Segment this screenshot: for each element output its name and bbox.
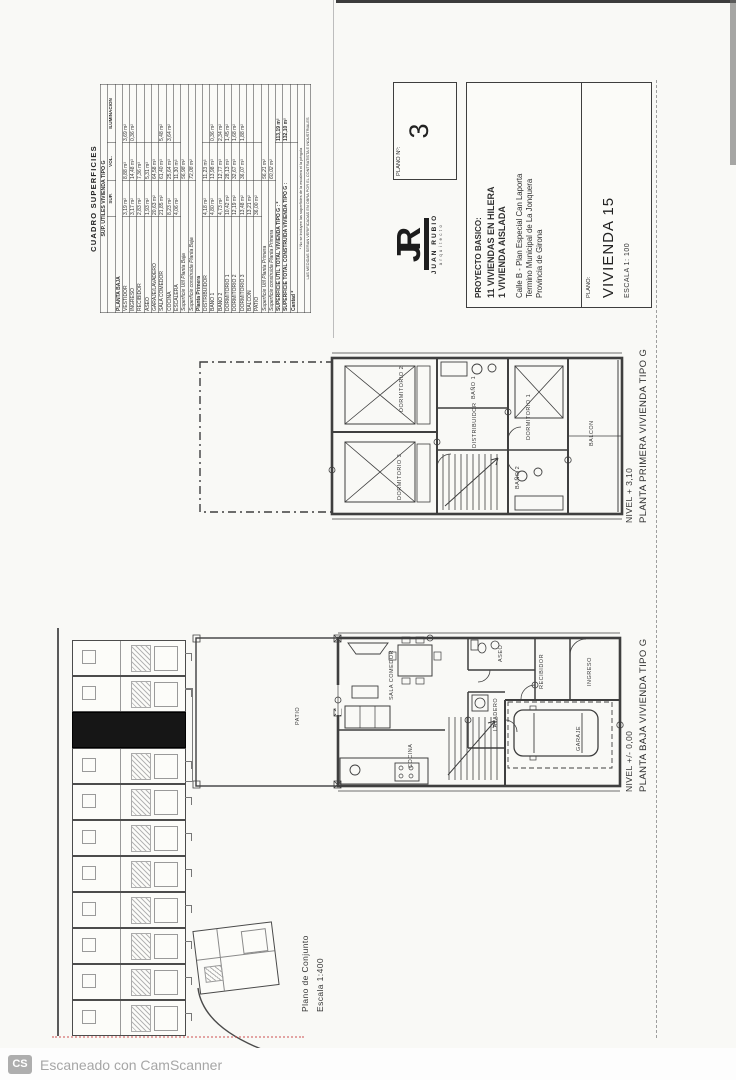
ground-floor-title: PLANTA BAJA VIVIENDA TIPO G xyxy=(638,638,649,792)
table-row: DORMITORIO 110,42 m²28,13 m³1,45 m² xyxy=(225,84,232,312)
scan-red-dotted-line xyxy=(52,1036,304,1038)
table-section-row: Planta Primera xyxy=(195,84,202,312)
site-unit xyxy=(72,748,186,784)
room-label-bano-2: BAÑO 2 xyxy=(515,466,521,489)
sheet-title-label: PLANO: xyxy=(586,83,592,298)
architect-name: JUAN RUBIO xyxy=(431,180,438,308)
table-row: SALA COMEDOR21,85 m²61,40 m³5,48 m² xyxy=(159,84,166,312)
project-heading: PROYECTO BASICO: xyxy=(474,83,483,298)
table-row: VESTIDOR3,19 m²8,88 m³3,69 m² xyxy=(122,84,129,312)
site-unit xyxy=(72,1000,186,1036)
plano-number-value: 3 xyxy=(404,83,435,179)
table-total-row: SUPERFICIE UTIL TOTAL VIVIENDA TIPO G : … xyxy=(276,84,283,312)
surface-table-block: CUADRO SUPERFICIES SUP. UTILES VIVIENDA … xyxy=(88,84,324,313)
room-label-bano-1: BAÑO 1 xyxy=(471,376,477,399)
site-unit xyxy=(72,892,186,928)
table-row: BAÑO 14,80 m²13,98 m³0,36 m² xyxy=(210,84,217,312)
table-section-row: PLANTA BAJA xyxy=(115,84,122,312)
sheet-scale: ESCALA 1: 100 xyxy=(624,83,631,298)
ground-floor-plan-drawing xyxy=(190,625,660,800)
scanned-sheet: CUADRO SUPERFICIES SUP. UTILES VIVIENDA … xyxy=(0,0,736,1080)
surface-table: SUP. UTILES VIVIENDA TIPO GSUP.VOL.ILUMI… xyxy=(100,84,311,313)
project-line-2: 1 VIVIENDA AISLADA xyxy=(497,83,508,298)
project-line-1: 11 VIVIENDAS EN HILERA xyxy=(486,83,497,298)
table-row: BALCON13,21 m² xyxy=(246,84,253,312)
table-row: PATIO36,00 m² xyxy=(254,84,261,312)
sheet-title-box: PLANO: VIVIENDA 15 ESCALA 1: 100 xyxy=(582,82,652,308)
fold-dash-line xyxy=(656,80,657,1038)
table-row: RECIBIDOR2,83 m²7,36 m³ xyxy=(137,84,144,312)
table-row: ESCALERA4,06 m²11,30 m³ xyxy=(173,84,180,312)
first-floor-level-label: NIVEL + 3,10 xyxy=(624,468,634,523)
surface-table-grid: SUP. UTILES VIVIENDA TIPO GSUP.VOL.ILUMI… xyxy=(100,84,311,313)
site-unit xyxy=(72,640,186,676)
table-subtotal-row: Superficie Util Planta Primera56,21 m² xyxy=(261,84,268,312)
paper-crease-line xyxy=(333,0,334,338)
ground-floor-level-label: NIVEL +/- 0,00 xyxy=(624,731,634,792)
room-label-distribuidor: DISTRIBUIDOR xyxy=(472,403,478,448)
room-label-dormitorio-3: DORMITORIO 3 xyxy=(397,454,403,500)
table-columns-row: SUP.VOL.ILUMINACION xyxy=(108,84,115,312)
project-info-box: PROYECTO BASICO: 11 VIVIENDAS EN HILERA … xyxy=(466,82,582,308)
table-row: GARAJE/LAVADERO20,63 m²64,58 m³ xyxy=(152,84,159,312)
sheet-title: VIVIENDA 15 xyxy=(600,83,617,298)
site-unit xyxy=(72,820,186,856)
page-top-edge xyxy=(336,0,736,3)
table-footnote-row: LAS MEDIDAS SERAN VERIFICADAS EN OBRA PO… xyxy=(304,84,311,312)
camscanner-badge-icon: CS xyxy=(8,1055,32,1074)
room-label-recibidor: RECIBIDOR xyxy=(539,654,545,689)
title-block: JR JUAN RUBIO arquitecto PLANO Nº: 3 PRO… xyxy=(390,82,656,308)
room-label-sala-comedor: SALA COMEDOR xyxy=(389,650,395,700)
table-row: ASEO1,93 m²5,31 m³ xyxy=(144,84,151,312)
plano-number-label: PLANO Nº: xyxy=(394,83,402,179)
address-line-1: Calle B - Plan Especial Can Laporta xyxy=(515,83,525,298)
room-label-ingreso: INGRESO xyxy=(587,657,593,686)
table-row: DISTRIBUIDOR4,18 m²11,23 m³ xyxy=(203,84,210,312)
address-line-2: Termino Municipal de La Jonquera xyxy=(525,83,535,298)
site-unit-highlighted xyxy=(72,712,186,748)
table-row: DORMITORIO 313,48 m²36,07 m³1,88 m² xyxy=(239,84,246,312)
table-row: INGRESO3,17 m²14,48 m³0,36 m² xyxy=(130,84,137,312)
site-boundary-line xyxy=(57,628,59,1036)
table-subtotal-row: Superficie Util Planta Baja56,98 m² xyxy=(181,84,188,312)
architect-logo: JR JUAN RUBIO arquitecto xyxy=(390,180,464,308)
room-label-patio: PATIO xyxy=(295,707,301,725)
room-label-dormitorio-1: DORMITORIO 1 xyxy=(526,394,532,440)
first-floor-title: PLANTA PRIMERA VIVIENDA TIPO G xyxy=(638,349,649,523)
site-plan-scale: Escala 1:400 xyxy=(315,958,325,1012)
site-unit xyxy=(72,964,186,1000)
plano-number-box: PLANO Nº: 3 xyxy=(393,82,457,180)
room-label-balcon: BALCON xyxy=(589,420,595,446)
table-subtotal-row: Superficie construida Planta Baja72,08 m… xyxy=(188,84,195,312)
site-unit xyxy=(72,676,186,712)
site-highlight-bracket xyxy=(185,688,193,782)
room-label-aseo: ASEO xyxy=(498,645,504,662)
table-row: COCINA8,23 m²25,64 m³3,64 m² xyxy=(166,84,173,312)
title-block-top-band: JR JUAN RUBIO arquitecto PLANO Nº: 3 xyxy=(390,82,464,308)
site-plan-caption: Plano de Conjunto xyxy=(300,935,310,1012)
table-subtotal-row: Superficie construida Planta Primera60,0… xyxy=(268,84,275,312)
site-unit xyxy=(72,928,186,964)
table-total-row: SUPERFICIE TOTAL CONSTRUIDA VIVIENDA TIP… xyxy=(283,84,290,312)
camscanner-footer: CS Escaneado con CamScanner xyxy=(0,1048,736,1080)
room-label-lavadero: LAVADERO xyxy=(493,698,499,731)
table-header-row: SUP. UTILES VIVIENDA TIPO G xyxy=(101,84,108,312)
room-label-dormitorio-2: DORMITORIO 2 xyxy=(399,366,405,412)
architect-role: arquitecto xyxy=(438,180,443,308)
site-unit xyxy=(72,784,186,820)
table-row: DORMITORIO 212,19 m²32,67 m³1,68 m² xyxy=(232,84,239,312)
page-right-shadow xyxy=(730,0,736,165)
logo-monogram-icon: JR xyxy=(392,180,426,308)
room-label-cocina: COCINA xyxy=(408,744,414,768)
site-plan-units xyxy=(72,640,184,1040)
table-row: BAÑO 24,73 m²12,77 m³2,34 m² xyxy=(217,84,224,312)
address-line-3: Provincia de Girona xyxy=(535,83,545,298)
room-label-garaje: GARAJE xyxy=(576,726,582,751)
camscanner-watermark-text: Escaneado con CamScanner xyxy=(40,1057,222,1073)
table-total-row: Cantad * xyxy=(290,84,297,312)
surface-table-title: CUADRO SUPERFICIES xyxy=(88,84,100,313)
site-unit xyxy=(72,856,186,892)
